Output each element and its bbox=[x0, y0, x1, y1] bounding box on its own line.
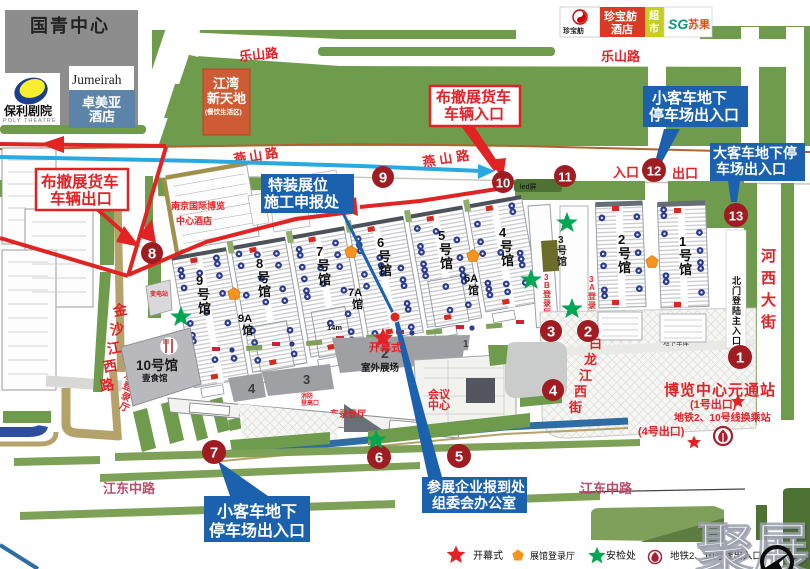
svg-text:(4号出口): (4号出口) bbox=[638, 424, 685, 438]
svg-text:施工申报处: 施工申报处 bbox=[264, 193, 340, 211]
svg-text:车场出入口: 车场出入口 bbox=[716, 161, 786, 177]
svg-text:西: 西 bbox=[574, 384, 587, 399]
svg-text:1: 1 bbox=[736, 350, 744, 367]
svg-text:7: 7 bbox=[316, 244, 323, 259]
svg-text:(餐饮生活区): (餐饮生活区) bbox=[205, 107, 242, 116]
svg-text:号: 号 bbox=[618, 246, 631, 261]
svg-text:5: 5 bbox=[438, 228, 445, 243]
svg-text:馆: 馆 bbox=[242, 323, 253, 337]
svg-text:布撤展货车: 布撤展货车 bbox=[41, 172, 119, 191]
svg-text:3: 3 bbox=[558, 235, 564, 246]
svg-text:壹食馆: 壹食馆 bbox=[142, 373, 168, 383]
svg-text:江湾: 江湾 bbox=[213, 76, 239, 91]
svg-text:大客车地下停: 大客车地下停 bbox=[713, 145, 797, 161]
svg-text:led屏: led屏 bbox=[520, 183, 536, 191]
svg-text:江: 江 bbox=[579, 368, 592, 383]
svg-text:消防: 消防 bbox=[301, 392, 313, 400]
svg-text:A: A bbox=[589, 283, 595, 292]
svg-text:小客车地下: 小客车地下 bbox=[217, 502, 297, 521]
svg-text:西: 西 bbox=[102, 357, 119, 375]
svg-text:国青中心: 国青中心 bbox=[30, 15, 110, 36]
svg-text:登高口: 登高口 bbox=[300, 399, 319, 407]
svg-text:号: 号 bbox=[378, 249, 391, 264]
svg-text:停车场出入口: 停车场出入口 bbox=[209, 521, 305, 540]
svg-text:室外展场: 室外展场 bbox=[361, 362, 400, 374]
svg-text:9A: 9A bbox=[238, 313, 252, 325]
svg-text:7A: 7A bbox=[348, 287, 362, 299]
svg-text:会议: 会议 bbox=[428, 387, 451, 401]
svg-text:停车场出入口: 停车场出入口 bbox=[649, 106, 739, 124]
svg-text:登: 登 bbox=[731, 295, 742, 306]
svg-text:车辆入口: 车辆入口 bbox=[444, 105, 504, 123]
svg-text:馆: 馆 bbox=[618, 260, 631, 275]
svg-text:号: 号 bbox=[500, 239, 513, 254]
svg-text:6: 6 bbox=[375, 450, 383, 467]
svg-text:超: 超 bbox=[648, 9, 660, 22]
svg-text:江东中路: 江东中路 bbox=[103, 481, 156, 496]
svg-text:新天地: 新天地 bbox=[207, 91, 246, 106]
svg-text:8: 8 bbox=[148, 246, 156, 263]
svg-text:12: 12 bbox=[647, 164, 661, 179]
svg-text:中心酒店: 中心酒店 bbox=[176, 215, 212, 226]
svg-text:8: 8 bbox=[256, 256, 263, 271]
svg-text:珍宝舫: 珍宝舫 bbox=[563, 26, 584, 35]
svg-text:7: 7 bbox=[210, 445, 218, 462]
svg-text:组委会办公室: 组委会办公室 bbox=[432, 495, 516, 511]
svg-text:(1号出口): (1号出口) bbox=[690, 397, 737, 411]
svg-text:10号馆: 10号馆 bbox=[136, 357, 178, 373]
svg-text:2: 2 bbox=[618, 232, 625, 247]
svg-text:馆: 馆 bbox=[468, 283, 479, 297]
svg-text:号: 号 bbox=[679, 248, 692, 263]
svg-text:9: 9 bbox=[379, 170, 387, 187]
svg-text:酒店: 酒店 bbox=[611, 22, 633, 36]
svg-text:中心: 中心 bbox=[428, 398, 450, 412]
svg-text:号: 号 bbox=[257, 270, 270, 285]
svg-text:5: 5 bbox=[455, 449, 463, 466]
svg-text:展馆登录厅: 展馆登录厅 bbox=[530, 550, 575, 561]
svg-text:号: 号 bbox=[197, 287, 210, 302]
svg-text:4: 4 bbox=[549, 383, 558, 400]
svg-text:地铁2、10号线换乘站: 地铁2、10号线换乘站 bbox=[674, 411, 771, 424]
svg-text:号: 号 bbox=[317, 258, 330, 273]
svg-text:开幕式: 开幕式 bbox=[473, 549, 503, 562]
svg-text:馆: 馆 bbox=[379, 263, 392, 278]
svg-text:北: 北 bbox=[732, 275, 741, 286]
svg-text:号: 号 bbox=[439, 242, 452, 257]
svg-text:4: 4 bbox=[248, 381, 256, 396]
svg-text:布撤展货车: 布撤展货车 bbox=[436, 88, 511, 106]
svg-text:馆: 馆 bbox=[440, 256, 453, 271]
svg-text:Jumeirah: Jumeirah bbox=[72, 72, 122, 87]
svg-text:沙: 沙 bbox=[109, 320, 126, 338]
svg-text:馆: 馆 bbox=[258, 284, 271, 299]
svg-text:河: 河 bbox=[761, 247, 776, 265]
svg-text:入口: 入口 bbox=[613, 165, 639, 180]
svg-text:苏果: 苏果 bbox=[688, 17, 710, 31]
svg-text:口: 口 bbox=[732, 336, 741, 346]
svg-text:录: 录 bbox=[588, 301, 596, 310]
svg-text:1: 1 bbox=[679, 234, 686, 249]
svg-text:出口: 出口 bbox=[672, 166, 698, 181]
svg-text:POLY THEATRE: POLY THEATRE bbox=[3, 118, 57, 124]
svg-text:主: 主 bbox=[732, 315, 741, 326]
svg-text:3: 3 bbox=[303, 372, 310, 387]
svg-text:馆: 馆 bbox=[679, 262, 692, 277]
svg-text:馆: 馆 bbox=[501, 253, 514, 268]
svg-text:11: 11 bbox=[558, 170, 572, 185]
svg-text:大: 大 bbox=[761, 291, 776, 309]
svg-text:馆: 馆 bbox=[557, 255, 567, 268]
svg-text:江东中路: 江东中路 bbox=[580, 481, 633, 496]
svg-text:车辆出口: 车辆出口 bbox=[50, 189, 112, 208]
svg-text:录: 录 bbox=[543, 299, 551, 308]
svg-text:馆: 馆 bbox=[318, 272, 331, 287]
svg-text:4: 4 bbox=[499, 225, 507, 240]
svg-text:登: 登 bbox=[542, 289, 552, 299]
svg-text:街: 街 bbox=[568, 400, 582, 415]
svg-text:馆: 馆 bbox=[352, 297, 363, 311]
svg-text:乐山路: 乐山路 bbox=[601, 49, 641, 64]
svg-text:B: B bbox=[544, 281, 550, 290]
svg-text:陆: 陆 bbox=[732, 305, 741, 316]
svg-text:SG: SG bbox=[668, 16, 688, 32]
svg-text:9: 9 bbox=[196, 273, 203, 288]
svg-text:市: 市 bbox=[649, 22, 659, 35]
svg-text:变电站: 变电站 bbox=[150, 290, 168, 298]
svg-text:2: 2 bbox=[584, 324, 592, 341]
svg-text:1: 1 bbox=[463, 339, 469, 350]
svg-text:参展企业报到处: 参展企业报到处 bbox=[427, 479, 526, 495]
svg-text:博览中心元通站: 博览中心元通站 bbox=[664, 381, 776, 399]
svg-text:登: 登 bbox=[587, 291, 597, 301]
svg-text:保利剧院: 保利剧院 bbox=[3, 103, 52, 118]
svg-text:特装展位: 特装展位 bbox=[268, 176, 328, 194]
svg-text:14m: 14m bbox=[327, 323, 342, 332]
svg-text:馆: 馆 bbox=[198, 301, 211, 316]
svg-text:街: 街 bbox=[760, 313, 776, 331]
svg-text:龙: 龙 bbox=[584, 352, 597, 367]
svg-text:3: 3 bbox=[547, 324, 555, 341]
svg-text:入: 入 bbox=[731, 326, 741, 336]
svg-text:南京国际博览: 南京国际博览 bbox=[171, 200, 225, 211]
svg-text:珍宝舫: 珍宝舫 bbox=[604, 9, 637, 23]
svg-text:小客车地下: 小客车地下 bbox=[652, 89, 727, 107]
svg-text:安检处: 安检处 bbox=[606, 549, 636, 562]
svg-text:6: 6 bbox=[377, 235, 384, 250]
svg-text:门: 门 bbox=[732, 285, 741, 296]
svg-text:西: 西 bbox=[761, 270, 776, 287]
svg-text:卓美亚: 卓美亚 bbox=[82, 95, 121, 110]
svg-text:开幕式: 开幕式 bbox=[369, 340, 402, 354]
svg-text:13: 13 bbox=[729, 209, 743, 224]
svg-text:10: 10 bbox=[496, 176, 510, 191]
svg-text:5A: 5A bbox=[464, 273, 478, 285]
svg-text:江: 江 bbox=[106, 339, 123, 357]
svg-text:号: 号 bbox=[557, 245, 567, 257]
svg-text:酒店: 酒店 bbox=[89, 109, 115, 124]
